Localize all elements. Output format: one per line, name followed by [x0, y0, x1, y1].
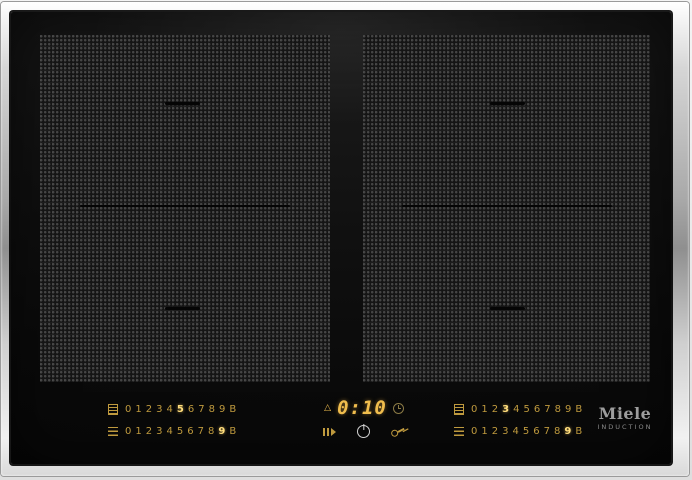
power-row-right-rear: 0123456789B	[454, 403, 582, 416]
power-selector-left: 0123456789B 0123456789B	[108, 403, 236, 438]
power-level-2[interactable]: 2	[492, 404, 498, 416]
zone-divider-right	[402, 205, 612, 207]
power-level-5[interactable]: 5	[177, 426, 183, 438]
timer-display-row: △ 0:10	[324, 398, 404, 418]
front-zone-icon	[108, 427, 118, 436]
power-level-scale: 0123456789B	[125, 404, 236, 416]
power-level-6[interactable]: 6	[188, 404, 194, 416]
power-level-2[interactable]: 2	[146, 404, 152, 416]
power-level-B[interactable]: B	[229, 404, 236, 416]
ceramic-glass-surface: 0123456789B 0123456789B △ 0:10	[11, 12, 671, 464]
power-level-1[interactable]: 1	[481, 404, 487, 416]
brand-logo: Miele INDUCTION	[589, 405, 661, 431]
power-level-0[interactable]: 0	[471, 426, 477, 438]
power-level-B[interactable]: B	[229, 426, 236, 438]
front-zone-icon	[454, 427, 464, 436]
power-level-9[interactable]: 9	[219, 404, 225, 416]
recall-bar	[327, 428, 329, 436]
brand-name: Miele	[589, 405, 661, 422]
power-level-0[interactable]: 0	[471, 404, 477, 416]
timer-clock-icon[interactable]	[393, 403, 404, 414]
power-level-3[interactable]: 3	[502, 426, 508, 438]
power-level-1[interactable]: 1	[135, 426, 141, 438]
power-level-3[interactable]: 3	[156, 404, 162, 416]
power-level-B[interactable]: B	[575, 404, 582, 416]
power-level-1[interactable]: 1	[481, 426, 487, 438]
power-level-1[interactable]: 1	[135, 404, 141, 416]
minute-minder-icon[interactable]: △	[324, 403, 331, 413]
zone-marker-right-upper	[490, 102, 525, 105]
brand-tagline: INDUCTION	[589, 423, 661, 431]
power-level-7[interactable]: 7	[198, 426, 204, 438]
power-level-3[interactable]: 3	[156, 426, 162, 438]
power-level-8[interactable]: 8	[554, 426, 560, 438]
power-level-0[interactable]: 0	[125, 404, 131, 416]
recall-arrow	[331, 428, 336, 436]
power-level-scale: 0123456789B	[471, 404, 582, 416]
power-level-8[interactable]: 8	[208, 426, 214, 438]
recall-icon[interactable]	[323, 428, 336, 436]
power-level-scale: 0123456789B	[471, 426, 582, 438]
rear-zone-icon	[108, 404, 118, 415]
power-level-scale: 0123456789B	[125, 426, 236, 438]
recall-bar	[323, 428, 325, 436]
power-level-9-active[interactable]: 9	[564, 426, 571, 438]
power-level-3-active[interactable]: 3	[502, 404, 509, 416]
power-row-left-front: 0123456789B	[108, 425, 236, 438]
power-icon[interactable]	[357, 425, 370, 438]
timer-display: 0:10	[337, 398, 387, 418]
power-level-9[interactable]: 9	[565, 404, 571, 416]
power-level-7[interactable]: 7	[544, 404, 550, 416]
zone-marker-left-lower	[165, 307, 200, 310]
zone-marker-left-upper	[165, 102, 200, 105]
cooking-zone-left	[40, 35, 330, 382]
power-row-right-front: 0123456789B	[454, 425, 582, 438]
power-level-4[interactable]: 4	[513, 404, 519, 416]
power-level-8[interactable]: 8	[555, 404, 561, 416]
power-row-left-rear: 0123456789B	[108, 403, 236, 416]
power-level-7[interactable]: 7	[544, 426, 550, 438]
power-level-4[interactable]: 4	[167, 426, 173, 438]
power-level-2[interactable]: 2	[146, 426, 152, 438]
power-level-0[interactable]: 0	[125, 426, 131, 438]
power-level-8[interactable]: 8	[209, 404, 215, 416]
center-buttons	[323, 425, 405, 438]
lock-icon[interactable]	[389, 423, 407, 440]
zone-marker-right-lower	[490, 307, 525, 310]
power-level-5[interactable]: 5	[523, 426, 529, 438]
zone-divider-left	[80, 205, 290, 207]
power-selector-right: 0123456789B 0123456789B	[454, 403, 582, 438]
power-level-6[interactable]: 6	[187, 426, 193, 438]
power-level-9-active[interactable]: 9	[218, 426, 225, 438]
power-level-B[interactable]: B	[575, 426, 582, 438]
power-level-5-active[interactable]: 5	[177, 404, 184, 416]
power-level-6[interactable]: 6	[533, 426, 539, 438]
power-level-2[interactable]: 2	[492, 426, 498, 438]
induction-cooktop-photo: 0123456789B 0123456789B △ 0:10	[0, 0, 692, 480]
timer-controls: △ 0:10	[315, 398, 413, 438]
power-level-4[interactable]: 4	[167, 404, 173, 416]
power-level-6[interactable]: 6	[534, 404, 540, 416]
rear-zone-icon	[454, 404, 464, 415]
power-level-5[interactable]: 5	[523, 404, 529, 416]
cooking-zone-right	[363, 35, 650, 382]
power-level-7[interactable]: 7	[198, 404, 204, 416]
power-level-4[interactable]: 4	[513, 426, 519, 438]
